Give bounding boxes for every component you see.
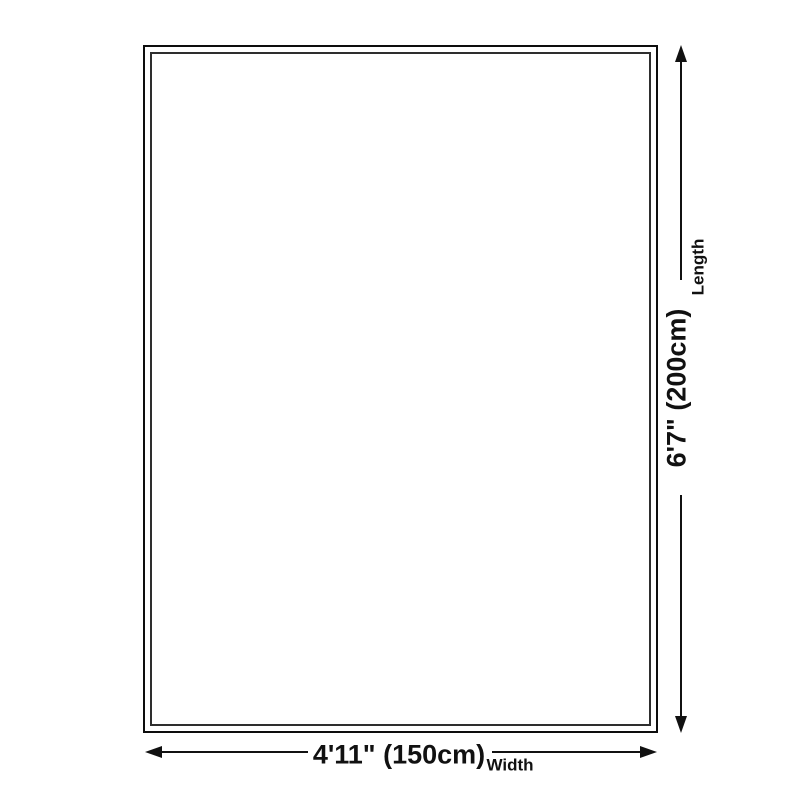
dimension-diagram: 6'7" (200cm) Length 4'11" (150cm) Width — [0, 0, 800, 800]
length-label: Length — [690, 239, 707, 296]
width-line-right-segment — [492, 751, 644, 753]
width-line-left-segment — [158, 751, 308, 753]
length-line-bottom-segment — [680, 495, 682, 725]
arrow-right-icon — [640, 746, 657, 758]
length-value: 6'7" (200cm) — [664, 309, 691, 468]
width-value: 4'11" (150cm) — [313, 742, 485, 769]
arrow-down-icon — [675, 716, 687, 733]
length-line-top-segment — [680, 48, 682, 280]
width-label: Width — [486, 757, 533, 774]
product-outline — [143, 45, 658, 733]
product-inner-border — [150, 52, 651, 726]
